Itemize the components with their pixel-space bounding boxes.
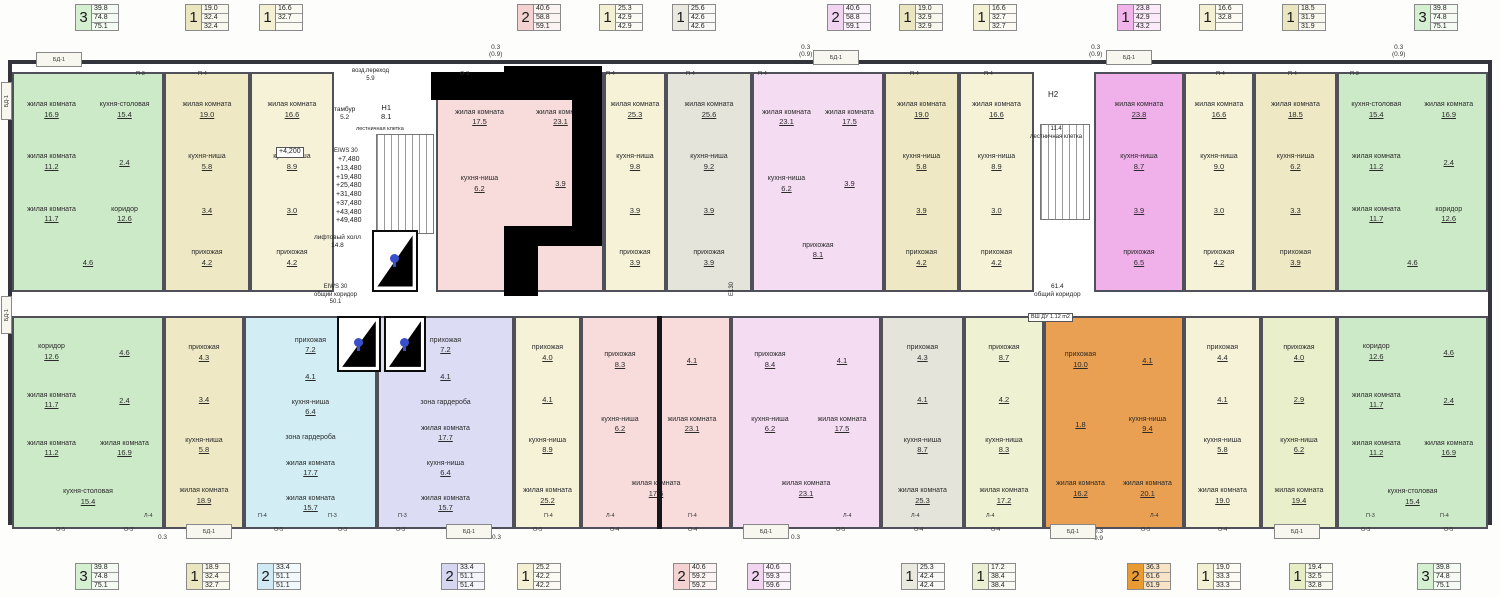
room-area: 17.2 xyxy=(980,496,1029,505)
room-name: прихожая xyxy=(1280,249,1311,256)
room-label: прихожая7.2 xyxy=(430,337,461,354)
room-label: прихожая4.0 xyxy=(1283,344,1314,361)
room-label: коридор12.6 xyxy=(1415,206,1482,223)
stat-room-count: 1 xyxy=(973,564,989,589)
stat-area-value: 38.4 xyxy=(989,573,1015,582)
room-area: 16.2 xyxy=(1050,489,1112,498)
stat-area-value: 59.6 xyxy=(764,582,790,590)
room-label: 4.1 xyxy=(809,356,875,365)
room-label: зона гардероба xyxy=(285,434,335,442)
room-area: 8.7 xyxy=(988,353,1019,362)
stat-room-count: 1 xyxy=(600,5,616,30)
apartment-stat-box: 116.632.7 xyxy=(259,4,303,31)
room-area: 12.6 xyxy=(1415,214,1482,223)
apartment-bottom-9: прихожая10.04.11.8кухня-ниша9.4жилая ком… xyxy=(1044,316,1184,529)
stat-area-value: 32.7 xyxy=(990,23,1016,31)
apartment-stat-box: 125.342.942.9 xyxy=(599,4,643,31)
room-label: 4.6 xyxy=(91,348,158,357)
dimension-label: 0.3 xyxy=(158,534,167,541)
stat-area-value: 75.1 xyxy=(92,23,118,31)
apartment-top-6: жилая комната23.1жилая комната17.5кухня-… xyxy=(752,72,884,292)
window-type-tag: П-4 xyxy=(758,71,767,77)
room-label: 3.9 xyxy=(704,206,714,215)
room-area: 9.4 xyxy=(1117,424,1179,433)
room-area: 4.2 xyxy=(191,258,222,267)
room-area: 6.2 xyxy=(1280,445,1317,454)
room-label: жилая комната23.1 xyxy=(758,109,816,126)
room-area: 5.8 xyxy=(903,162,940,171)
room-name: жилая комната xyxy=(286,460,335,467)
stat-area-value: 61.6 xyxy=(1144,573,1170,582)
stat-areas: 18.932.432.7 xyxy=(203,564,229,589)
room-name: прихожая xyxy=(188,344,219,351)
apartment-rooms: прихожая10.04.11.8кухня-ниша9.4жилая ком… xyxy=(1046,318,1182,527)
room-name: кухня-столовая xyxy=(100,101,150,108)
apartment-top-4: жилая комната25.3кухня-ниша9.83.9прихожа… xyxy=(604,72,666,292)
room-area: 8.1 xyxy=(789,250,847,259)
room-area: 4.1 xyxy=(542,395,552,404)
apartment-stat-box: 123.842.943.2 xyxy=(1117,4,1161,31)
plan-label: Н2 xyxy=(1048,90,1058,100)
stat-room-count: 3 xyxy=(76,5,92,30)
room-label: 3.4 xyxy=(199,395,209,404)
room-label: жилая комната11.2 xyxy=(1343,153,1410,170)
window-type-tag: О-5 xyxy=(56,527,65,533)
room-label: жилая комната20.1 xyxy=(1117,480,1179,497)
stat-areas: 40.658.859.1 xyxy=(534,5,560,30)
stat-room-count: 2 xyxy=(674,564,690,589)
stat-area-value: 75.1 xyxy=(1434,582,1460,590)
room-area: 4.6 xyxy=(91,348,158,357)
room-area: 6.2 xyxy=(758,184,816,193)
room-label: 3.9 xyxy=(821,179,879,188)
room-label: 4.2 xyxy=(999,395,1009,404)
stat-area-value: 74.8 xyxy=(92,14,118,23)
room-name: кухня-ниша xyxy=(690,153,727,160)
room-label: кухня-ниша9.0 xyxy=(1200,153,1237,170)
room-area: 6.5 xyxy=(1123,258,1154,267)
plan-label: возд.переход 5.9 xyxy=(352,68,389,83)
stat-area-value: 39.8 xyxy=(92,5,118,14)
stat-area-value: 19.4 xyxy=(1306,564,1332,573)
balcony-door-tag: БД-1 xyxy=(1274,524,1320,539)
room-label: кухня-ниша6.2 xyxy=(1280,437,1317,454)
room-area: 17.5 xyxy=(821,117,879,126)
stat-area-value: 59.1 xyxy=(844,23,870,31)
stat-area-value: 74.8 xyxy=(1434,573,1460,582)
balcony-tag-text: БД-1 xyxy=(1123,55,1135,61)
room-area: 4.1 xyxy=(659,356,725,365)
apartment-rooms: прихожая4.44.1кухня-ниша5.8жилая комната… xyxy=(1186,318,1259,527)
balcony-tag-text: БД-1 xyxy=(4,95,10,107)
room-name: прихожая xyxy=(430,337,461,344)
stat-area-value: 33.4 xyxy=(458,564,484,573)
apartment-bottom-12: коридор12.64.6жилая комната11.72.4жилая … xyxy=(1337,316,1488,529)
room-area: 9.2 xyxy=(690,162,727,171)
room-name: кухня-ниша xyxy=(1280,437,1317,444)
room-label: 3.0 xyxy=(991,206,1001,215)
stat-areas: 25.342.442.4 xyxy=(918,564,944,589)
room-area: 6.2 xyxy=(442,184,517,193)
room-name: жилая комната xyxy=(27,440,76,447)
room-name: кухня-ниша xyxy=(601,416,638,423)
room-label: прихожая7.2 xyxy=(295,337,326,354)
window-type-tag: П-3 xyxy=(1350,71,1359,77)
room-area: 5.8 xyxy=(1204,445,1241,454)
plan-label: ВШ ДУ 1.12 m2 xyxy=(1028,313,1073,322)
room-name: прихожая xyxy=(1123,249,1154,256)
dimension-label: 0.3 (0.9) xyxy=(799,44,812,58)
apartment-rooms: жилая комната16.9кухня-столовая15.4жилая… xyxy=(14,74,162,290)
balcony-tag-text: БД-1 xyxy=(760,529,772,535)
balcony-door-tag: БД-1 xyxy=(36,52,82,67)
stat-room-count: 2 xyxy=(258,564,274,589)
apartment-bottom-5: прихожая8.34.1кухня-ниша6.2жилая комната… xyxy=(581,316,731,529)
room-area: 8.9 xyxy=(273,162,310,171)
room-label: 4.1 xyxy=(542,395,552,404)
stat-area-value xyxy=(276,23,302,30)
balcony-door-tag: БД-1 xyxy=(1,296,12,334)
room-area: 16.6 xyxy=(268,110,317,119)
apartment-stat-box: 339.874.875.1 xyxy=(75,4,119,31)
stat-area-value: 59.1 xyxy=(534,23,560,31)
room-name: кухня-ниша xyxy=(903,153,940,160)
room-name: коридор xyxy=(111,206,138,213)
room-name: прихожая xyxy=(295,337,326,344)
room-label: прихожая4.2 xyxy=(191,249,222,266)
room-label: жилая комната19.0 xyxy=(183,101,232,118)
room-label: зона гардероба xyxy=(420,399,470,407)
balcony-tag-text: БД-1 xyxy=(1067,529,1079,535)
balcony-tag-text: БД-1 xyxy=(203,529,215,535)
room-area: 9.8 xyxy=(616,162,653,171)
elevator-call-icon xyxy=(354,338,363,347)
window-type-tag: П-4 xyxy=(1440,513,1449,519)
stat-area-value: 25.3 xyxy=(616,5,642,14)
room-area: 5.8 xyxy=(185,445,222,454)
stat-areas: 19.432.532.8 xyxy=(1306,564,1332,589)
room-name: кухня-столовая xyxy=(1388,488,1438,495)
stat-areas: 25.242.242.2 xyxy=(534,564,560,589)
room-name: прихожая xyxy=(1207,344,1238,351)
stat-area-value: 51.4 xyxy=(458,582,484,590)
room-name: зона гардероба xyxy=(285,434,335,441)
room-label: прихожая4.2 xyxy=(981,249,1012,266)
window-type-tag: Л-4 xyxy=(606,513,615,519)
window-type-tag: О-4 xyxy=(914,527,923,533)
room-area: 3.9 xyxy=(821,179,879,188)
room-label: жилая комната11.2 xyxy=(18,153,85,170)
room-area: 11.2 xyxy=(18,448,85,457)
room-name: жилая комната xyxy=(1352,206,1401,213)
stat-areas: 33.451.151.4 xyxy=(458,564,484,589)
room-area: 25.2 xyxy=(523,496,572,505)
balcony-door-tag: БД-1 xyxy=(1106,50,1152,65)
room-label: 4.6 xyxy=(54,258,121,267)
room-name: кухня-ниша xyxy=(1277,153,1314,160)
apartment-stat-box: 118.531.931.9 xyxy=(1282,4,1326,31)
room-label: кухня-столовая15.4 xyxy=(1343,101,1410,118)
stat-area-value: 42.6 xyxy=(689,23,715,31)
stat-area-value: 42.4 xyxy=(918,582,944,590)
stat-area-value: 18.5 xyxy=(1299,5,1325,14)
room-area: 3.0 xyxy=(1214,206,1224,215)
balcony-tag-text: БД-1 xyxy=(463,529,475,535)
room-name: жилая комната xyxy=(632,480,681,487)
room-area: 23.1 xyxy=(659,424,725,433)
room-label: кухня-ниша8.7 xyxy=(1120,153,1157,170)
room-name: жилая комната xyxy=(1198,487,1247,494)
window-type-tag: О-3 xyxy=(124,527,133,533)
window-type-tag: Л-4 xyxy=(843,513,852,519)
room-name: зона гардероба xyxy=(420,399,470,406)
room-area: 4.1 xyxy=(305,372,315,381)
stat-room-count: 1 xyxy=(1283,5,1299,30)
stat-area-value: 25.3 xyxy=(918,564,944,573)
apartment-stat-box: 240.658.859.1 xyxy=(517,4,561,31)
room-label: 4.1 xyxy=(1117,356,1179,365)
room-label: жилая комната25.3 xyxy=(611,101,660,118)
apartment-bottom-0: коридор12.64.6жилая комната11.72.4жилая … xyxy=(12,316,164,529)
apartment-stat-box: 125.242.242.2 xyxy=(517,563,561,590)
room-area: 25.3 xyxy=(611,110,660,119)
apartment-stat-box: 119.033.333.3 xyxy=(1197,563,1241,590)
room-area: 15.7 xyxy=(421,503,470,512)
room-label: 2.9 xyxy=(1294,395,1304,404)
room-label: 2.4 xyxy=(91,396,158,405)
stat-room-count: 2 xyxy=(1128,564,1144,589)
apartment-stat-box: 339.874.875.1 xyxy=(1414,4,1458,31)
plan-label: тамбур 5.2 xyxy=(334,106,355,122)
room-name: жилая комната xyxy=(27,206,76,213)
stat-areas: 16.632.732.7 xyxy=(990,5,1016,30)
room-name: жилая комната xyxy=(455,109,504,116)
room-area: 2.4 xyxy=(91,396,158,405)
room-label: кухня-ниша9.4 xyxy=(1117,416,1179,433)
room-label: 3.4 xyxy=(202,206,212,215)
stat-area-value: 32.4 xyxy=(203,573,229,582)
stat-area-value: 33.4 xyxy=(274,564,300,573)
room-label: прихожая10.0 xyxy=(1050,351,1112,368)
window-type-tag: Л-4 xyxy=(1150,513,1159,519)
room-area: 15.4 xyxy=(1379,497,1446,506)
stat-area-value: 42.9 xyxy=(616,14,642,23)
room-area: 7.2 xyxy=(295,345,326,354)
room-label: 4.6 xyxy=(1415,348,1482,357)
apartment-rooms: жилая комната25.3кухня-ниша9.83.9прихожа… xyxy=(606,74,664,290)
room-label: кухня-ниша6.2 xyxy=(758,175,816,192)
room-area: 4.4 xyxy=(1207,353,1238,362)
room-area: 11.7 xyxy=(1343,400,1410,409)
stat-area-value: 42.9 xyxy=(1134,14,1160,23)
stat-areas: 40.659.259.2 xyxy=(690,564,716,589)
balcony-door-tag: БД-1 xyxy=(1,82,12,120)
room-label: жилая комната23.1 xyxy=(659,416,725,433)
apartment-bottom-10: прихожая4.44.1кухня-ниша5.8жилая комната… xyxy=(1184,316,1261,529)
room-area: 15.7 xyxy=(286,503,335,512)
room-area: 3.9 xyxy=(916,206,926,215)
room-name: жилая комната xyxy=(286,495,335,502)
room-area: 4.2 xyxy=(276,258,307,267)
room-label: жилая комната11.7 xyxy=(1343,392,1410,409)
stat-room-count: 1 xyxy=(673,5,689,30)
room-area: 17.7 xyxy=(421,433,470,442)
room-area: 11.7 xyxy=(18,214,85,223)
room-area: 4.6 xyxy=(1415,348,1482,357)
room-label: прихожая4.4 xyxy=(1207,344,1238,361)
apartment-top-7: жилая комната19.0кухня-ниша5.83.9прихожа… xyxy=(884,72,959,292)
room-area: 3.4 xyxy=(199,395,209,404)
stat-area-value: 42.2 xyxy=(534,582,560,590)
stat-areas: 39.874.875.1 xyxy=(92,564,118,589)
room-area: 20.1 xyxy=(1117,489,1179,498)
room-area: 8.7 xyxy=(904,445,941,454)
room-label: жилая комната17.5 xyxy=(821,109,879,126)
window-type-tag: О-3 xyxy=(396,527,405,533)
room-label: жилая комната15.7 xyxy=(286,495,335,512)
stat-area-value: 32.5 xyxy=(1306,573,1332,582)
stat-room-count: 1 xyxy=(1290,564,1306,589)
room-label: жилая комната16.6 xyxy=(268,101,317,118)
room-name: жилая комната xyxy=(523,487,572,494)
plan-label: Е130 xyxy=(729,282,737,296)
room-area: 11.2 xyxy=(1343,162,1410,171)
room-name: жилая комната xyxy=(668,416,717,423)
room-name: жилая комната xyxy=(1195,101,1244,108)
room-area: 3.9 xyxy=(619,258,650,267)
room-area: 16.9 xyxy=(18,110,85,119)
window-type-tag: П-4 xyxy=(910,71,919,77)
apartment-bottom-6: прихожая8.44.1кухня-ниша6.2жилая комната… xyxy=(731,316,881,529)
room-label: жилая комната11.2 xyxy=(1343,440,1410,457)
apartment-top-10: жилая комната16.6кухня-ниша9.03.0прихожа… xyxy=(1184,72,1254,292)
apartment-rooms: жилая комната19.0кухня-ниша5.83.9прихожа… xyxy=(886,74,957,290)
apartment-rooms: прихожая4.04.1кухня-ниша8.9жилая комната… xyxy=(516,318,579,527)
room-area: 4.0 xyxy=(532,353,563,362)
stat-areas: 39.874.875.1 xyxy=(1434,564,1460,589)
room-area: 4.2 xyxy=(1203,258,1234,267)
room-name: жилая комната xyxy=(27,153,76,160)
room-area: 8.3 xyxy=(587,360,653,369)
room-label: 4.1 xyxy=(440,372,450,381)
room-name: кухня-ниша xyxy=(292,399,329,406)
room-label: 2.4 xyxy=(91,158,158,167)
room-name: кухня-ниша xyxy=(616,153,653,160)
room-area: 8.4 xyxy=(737,360,803,369)
room-area: 4.0 xyxy=(1283,353,1314,362)
stat-room-count: 1 xyxy=(260,5,276,30)
stat-area-value: 32.4 xyxy=(202,23,228,31)
apartment-stat-box: 233.451.151.4 xyxy=(441,563,485,590)
room-area: 17.5 xyxy=(623,489,689,498)
room-name: коридор xyxy=(1363,343,1390,350)
stat-areas: 39.874.875.1 xyxy=(92,5,118,30)
room-name: кухня-ниша xyxy=(185,437,222,444)
stat-area-value: 39.8 xyxy=(92,564,118,573)
room-label: жилая комната16.9 xyxy=(91,440,158,457)
window-type-tag: О-5 xyxy=(1141,527,1150,533)
window-type-tag: П-3 xyxy=(328,513,337,519)
room-area: 4.1 xyxy=(917,395,927,404)
apartment-rooms: коридор12.64.6жилая комната11.72.4жилая … xyxy=(14,318,162,527)
room-label: 4.6 xyxy=(1379,258,1446,267)
room-area: 17.7 xyxy=(286,468,335,477)
stat-room-count: 1 xyxy=(900,5,916,30)
stat-room-count: 1 xyxy=(1118,5,1134,30)
room-label: 3.9 xyxy=(1134,206,1144,215)
stat-area-value xyxy=(1216,23,1242,30)
stat-area-value: 16.6 xyxy=(1216,5,1242,14)
room-name: прихожая xyxy=(604,351,635,358)
room-area: 6.2 xyxy=(1277,162,1314,171)
stat-area-value: 23.8 xyxy=(1134,5,1160,14)
room-area: 3.9 xyxy=(693,258,724,267)
stat-area-value: 40.6 xyxy=(844,5,870,14)
room-name: кухня-ниша xyxy=(461,175,498,182)
apartment-stat-box: 118.932.432.7 xyxy=(186,563,230,590)
room-area: 4.2 xyxy=(999,395,1009,404)
room-name: прихожая xyxy=(981,249,1012,256)
apartment-stat-box: 240.659.259.2 xyxy=(673,563,717,590)
stat-areas: 36.361.661.9 xyxy=(1144,564,1170,589)
stat-area-value: 32.8 xyxy=(1306,582,1332,590)
window-type-tag: П-4 xyxy=(258,513,267,519)
apartment-stat-box: 233.451.151.1 xyxy=(257,563,301,590)
room-label: кухня-ниша5.8 xyxy=(1204,437,1241,454)
room-area: 3.9 xyxy=(1280,258,1311,267)
room-label: кухня-ниша8.9 xyxy=(978,153,1015,170)
apartment-top-1: жилая комната19.0кухня-ниша5.83.4прихожа… xyxy=(164,72,250,292)
room-name: кухня-ниша xyxy=(188,153,225,160)
stat-area-value: 32.9 xyxy=(916,14,942,23)
apartment-bottom-11: прихожая4.02.9кухня-ниша6.2жилая комната… xyxy=(1261,316,1337,529)
apartment-top-12: кухня-столовая15.4жилая комната16.9жилая… xyxy=(1337,72,1488,292)
room-label: жилая комната17.5 xyxy=(442,109,517,126)
room-name: жилая комната xyxy=(180,487,229,494)
stat-areas: 25.342.942.9 xyxy=(616,5,642,30)
stat-areas: 23.842.943.2 xyxy=(1134,5,1160,30)
window-type-tag: О-3 xyxy=(338,527,347,533)
stat-area-value: 19.0 xyxy=(202,5,228,14)
room-label: кухня-столовая15.4 xyxy=(1379,488,1446,505)
balcony-door-tag: БД-1 xyxy=(1050,524,1096,539)
room-name: жилая комната xyxy=(825,109,874,116)
stat-room-count: 2 xyxy=(442,564,458,589)
room-name: жилая комната xyxy=(782,480,831,487)
room-name: прихожая xyxy=(802,242,833,249)
window-type-tag: Л-4 xyxy=(911,513,920,519)
room-name: жилая комната xyxy=(1352,440,1401,447)
stat-area-value: 33.3 xyxy=(1214,573,1240,582)
stat-area-value: 39.8 xyxy=(1431,5,1457,14)
apartment-top-8: жилая комната16.6кухня-ниша8.93.0прихожа… xyxy=(959,72,1034,292)
window-type-tag: О-3 xyxy=(1361,527,1370,533)
room-area: 3.9 xyxy=(630,206,640,215)
room-name: жилая комната xyxy=(1424,440,1473,447)
window-type-tag: О-5 xyxy=(533,527,542,533)
room-area: 1.8 xyxy=(1050,420,1112,429)
room-name: жилая комната xyxy=(1352,153,1401,160)
apartment-bottom-4: прихожая4.04.1кухня-ниша8.9жилая комната… xyxy=(514,316,581,529)
room-name: кухня-ниша xyxy=(978,153,1015,160)
stat-room-count: 2 xyxy=(748,564,764,589)
apartment-bottom-1: прихожая4.33.4кухня-ниша5.8жилая комната… xyxy=(164,316,244,529)
room-area: 3.3 xyxy=(1290,206,1300,215)
window-type-tag: П-4 xyxy=(198,71,207,77)
apartment-bottom-7: прихожая4.34.1кухня-ниша8.7жилая комната… xyxy=(881,316,964,529)
stat-areas: 19.032.432.4 xyxy=(202,5,228,30)
stat-area-value: 32.8 xyxy=(1216,14,1242,23)
